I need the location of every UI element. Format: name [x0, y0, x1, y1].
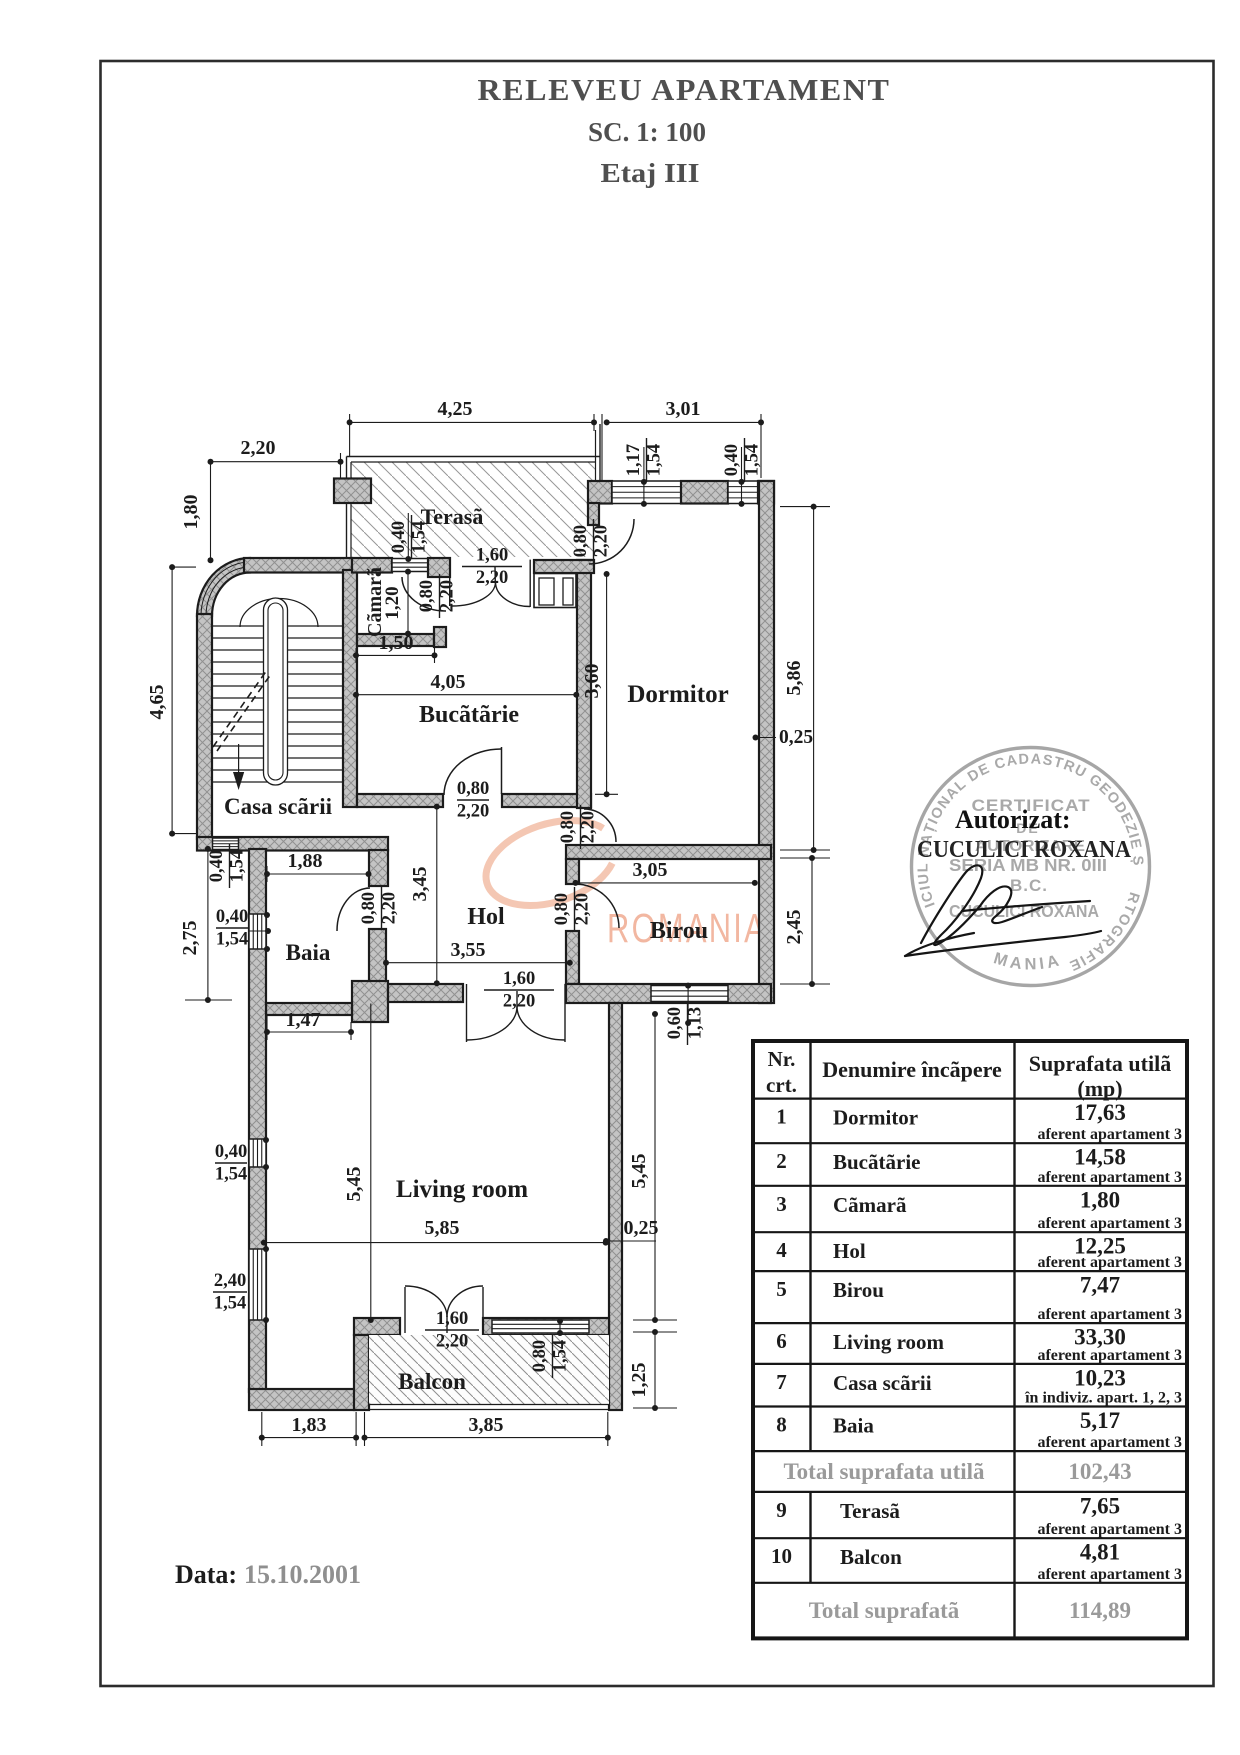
svg-text:3,85: 3,85 [469, 1414, 504, 1436]
svg-text:5,86: 5,86 [783, 661, 805, 696]
svg-text:3,60: 3,60 [581, 664, 603, 699]
svg-text:7,65: 7,65 [1080, 1493, 1120, 1518]
svg-text:15.10.2001: 15.10.2001 [244, 1560, 361, 1589]
svg-text:Bucãtãrie: Bucãtãrie [419, 702, 519, 728]
svg-text:aferent apartament 3: aferent apartament 3 [1037, 1434, 1182, 1451]
svg-text:aferent apartament 3: aferent apartament 3 [1037, 1254, 1182, 1271]
svg-text:14,58: 14,58 [1074, 1145, 1126, 1170]
svg-text:Hol: Hol [467, 904, 505, 930]
svg-text:5,45: 5,45 [628, 1154, 650, 1189]
svg-text:2,20: 2,20 [457, 802, 489, 822]
svg-text:114,89: 114,89 [1069, 1598, 1131, 1623]
svg-text:1,17: 1,17 [624, 444, 644, 476]
svg-text:aferent apartament 3: aferent apartament 3 [1037, 1347, 1182, 1364]
svg-text:0,25: 0,25 [779, 727, 813, 748]
svg-text:0,40: 0,40 [216, 907, 248, 927]
svg-text:Living room: Living room [833, 1330, 945, 1354]
svg-text:3,45: 3,45 [409, 867, 431, 902]
svg-text:Casa scãrii: Casa scãrii [224, 794, 333, 819]
svg-text:1,83: 1,83 [292, 1414, 327, 1436]
svg-text:Cãmarã: Cãmarã [833, 1193, 907, 1217]
svg-text:SC. 1: 100: SC. 1: 100 [588, 117, 706, 147]
svg-text:0,80: 0,80 [457, 779, 489, 799]
svg-text:1,20: 1,20 [382, 586, 403, 619]
svg-text:10,23: 10,23 [1074, 1365, 1126, 1390]
svg-text:2,20: 2,20 [436, 1332, 468, 1352]
svg-text:RELEVEU APARTAMENT: RELEVEU APARTAMENT [478, 72, 891, 107]
svg-text:Baia: Baia [286, 940, 331, 965]
svg-text:1,54: 1,54 [743, 444, 763, 476]
svg-text:aferent apartament 3: aferent apartament 3 [1037, 1215, 1182, 1232]
svg-text:3,55: 3,55 [451, 939, 486, 961]
svg-text:Birou: Birou [650, 918, 708, 944]
svg-text:4,65: 4,65 [146, 685, 168, 720]
svg-text:5,17: 5,17 [1080, 1408, 1120, 1433]
svg-text:2,40: 2,40 [214, 1271, 246, 1291]
svg-text:Balcon: Balcon [398, 1369, 466, 1394]
svg-text:2,20: 2,20 [241, 437, 276, 459]
svg-text:1,25: 1,25 [628, 1363, 650, 1398]
svg-text:1,80: 1,80 [180, 495, 202, 530]
svg-text:Total suprafata utilã: Total suprafata utilã [783, 1459, 985, 1484]
svg-text:7,47: 7,47 [1080, 1273, 1120, 1298]
svg-text:1,60: 1,60 [476, 546, 508, 566]
svg-text:3,01: 3,01 [666, 398, 701, 420]
svg-text:0,40: 0,40 [722, 444, 742, 476]
svg-text:33,30: 33,30 [1074, 1325, 1126, 1350]
svg-text:Autorizat:: Autorizat: [955, 805, 1071, 834]
svg-text:Denumire încãpere: Denumire încãpere [822, 1057, 1002, 1082]
svg-text:Etaj III: Etaj III [601, 158, 700, 188]
svg-text:Dormitor: Dormitor [833, 1106, 918, 1130]
svg-text:1,88: 1,88 [288, 850, 323, 872]
svg-text:2,20: 2,20 [573, 893, 593, 925]
svg-text:2,75: 2,75 [179, 921, 201, 956]
svg-text:2: 2 [776, 1149, 787, 1173]
svg-text:aferent apartament 3: aferent apartament 3 [1037, 1169, 1182, 1186]
svg-text:2,20: 2,20 [592, 525, 612, 557]
svg-text:Balcon: Balcon [840, 1545, 902, 1569]
svg-text:1,60: 1,60 [503, 969, 535, 989]
svg-text:aferent apartament 3: aferent apartament 3 [1037, 1566, 1182, 1583]
svg-text:0,60: 0,60 [665, 1007, 685, 1039]
svg-text:Suprafata utilã: Suprafata utilã [1029, 1051, 1171, 1076]
svg-text:aferent apartament 3: aferent apartament 3 [1037, 1306, 1182, 1323]
svg-text:0,40: 0,40 [207, 850, 227, 882]
svg-text:1: 1 [776, 1105, 787, 1129]
svg-text:1,54: 1,54 [216, 930, 248, 950]
svg-text:Terasã: Terasã [840, 1499, 900, 1523]
svg-text:(mp): (mp) [1077, 1076, 1122, 1101]
svg-text:Nr.: Nr. [768, 1047, 796, 1071]
svg-text:1,54: 1,54 [410, 521, 430, 553]
svg-text:Hol: Hol [833, 1239, 866, 1263]
svg-text:crt.: crt. [766, 1073, 797, 1097]
svg-text:0,80: 0,80 [571, 525, 591, 557]
svg-text:Data:: Data: [175, 1560, 237, 1589]
svg-text:17,63: 17,63 [1074, 1100, 1126, 1125]
svg-text:Birou: Birou [833, 1278, 884, 1302]
svg-text:aferent apartament 3: aferent apartament 3 [1037, 1521, 1182, 1538]
svg-text:3,05: 3,05 [633, 859, 668, 881]
svg-text:Casa scãrii: Casa scãrii [833, 1371, 932, 1395]
svg-text:4,81: 4,81 [1080, 1540, 1120, 1565]
svg-text:Total suprafatã: Total suprafatã [809, 1598, 960, 1623]
svg-text:3: 3 [776, 1192, 787, 1216]
svg-text:10: 10 [771, 1544, 792, 1568]
svg-text:4: 4 [776, 1238, 787, 1262]
svg-text:1,60: 1,60 [436, 1309, 468, 1329]
svg-text:CUCULICI ROXANA: CUCULICI ROXANA [917, 837, 1132, 863]
svg-text:1,54: 1,54 [228, 850, 248, 882]
svg-text:6: 6 [776, 1329, 787, 1353]
svg-text:0,80: 0,80 [558, 811, 578, 843]
svg-text:1,54: 1,54 [215, 1165, 247, 1185]
svg-text:Dormitor: Dormitor [627, 681, 728, 708]
svg-text:Terasã: Terasã [421, 504, 484, 529]
svg-text:0,80: 0,80 [530, 1340, 550, 1372]
svg-text:4,05: 4,05 [431, 671, 466, 693]
svg-text:8: 8 [776, 1413, 787, 1437]
svg-text:0,25: 0,25 [624, 1217, 659, 1239]
svg-text:0,80: 0,80 [417, 580, 437, 612]
svg-text:7: 7 [776, 1370, 787, 1394]
svg-text:5: 5 [776, 1277, 787, 1301]
svg-text:în indiviz. apart. 1, 2, 3: în indiviz. apart. 1, 2, 3 [1024, 1390, 1182, 1407]
svg-text:0,80: 0,80 [359, 892, 379, 924]
svg-text:2,20: 2,20 [438, 580, 458, 612]
svg-text:5,45: 5,45 [343, 1167, 365, 1202]
svg-text:1,54: 1,54 [551, 1340, 571, 1372]
svg-text:Baia: Baia [833, 1414, 874, 1438]
svg-text:1,54: 1,54 [214, 1294, 246, 1314]
svg-text:2,45: 2,45 [783, 910, 805, 945]
svg-text:0,40: 0,40 [389, 521, 409, 553]
svg-text:1,54: 1,54 [645, 444, 665, 476]
svg-text:4,25: 4,25 [438, 398, 473, 420]
svg-text:102,43: 102,43 [1068, 1459, 1131, 1484]
svg-text:2,20: 2,20 [380, 892, 400, 924]
svg-text:Living room: Living room [396, 1176, 528, 1203]
svg-text:B.C.: B.C. [1010, 876, 1048, 895]
svg-text:5,85: 5,85 [425, 1217, 460, 1239]
svg-text:2,20: 2,20 [579, 811, 599, 843]
svg-text:9: 9 [776, 1498, 787, 1522]
svg-text:1,47: 1,47 [286, 1009, 321, 1031]
svg-text:2,20: 2,20 [503, 992, 535, 1012]
svg-text:1,80: 1,80 [1080, 1187, 1120, 1212]
svg-text:0,40: 0,40 [215, 1142, 247, 1162]
svg-text:0,80: 0,80 [552, 893, 572, 925]
svg-text:aferent apartament 3: aferent apartament 3 [1037, 1126, 1182, 1143]
svg-text:Bucãtãrie: Bucãtãrie [833, 1150, 920, 1174]
svg-text:2,20: 2,20 [476, 568, 508, 588]
